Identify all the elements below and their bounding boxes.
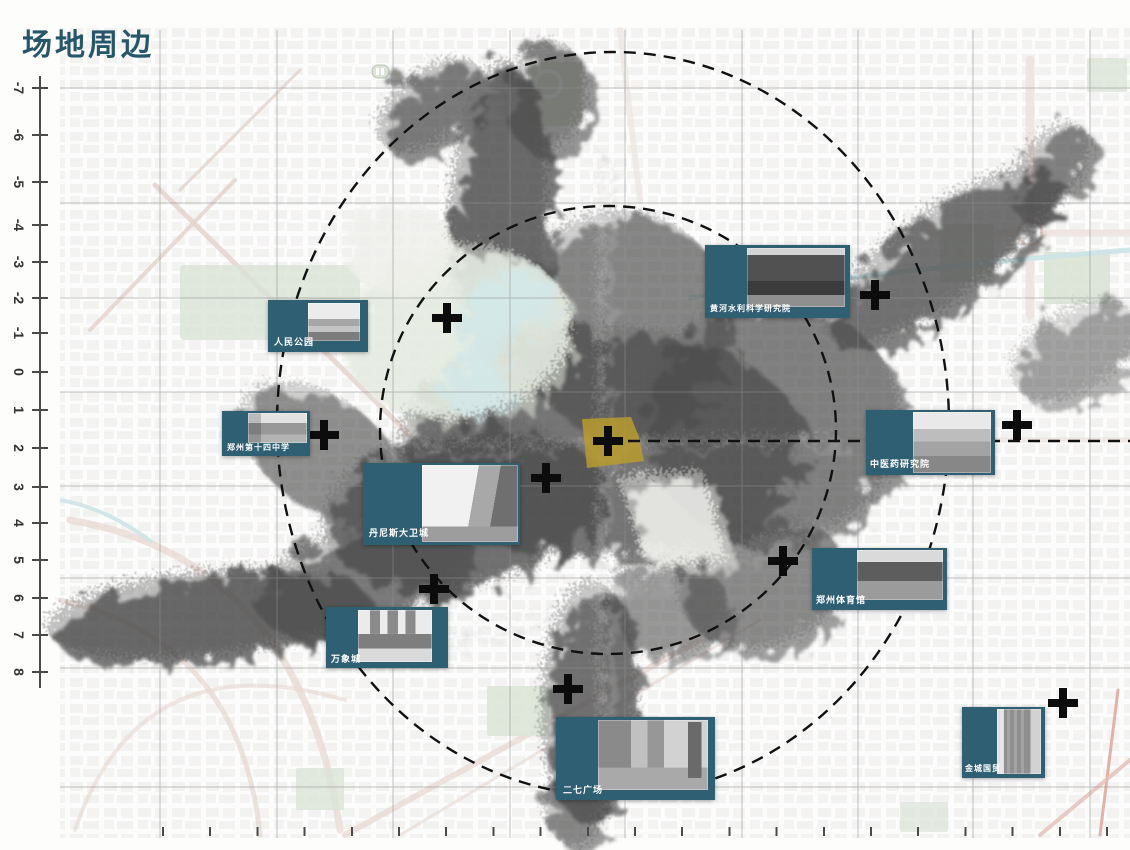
card-tcm-institute: 中医药研究院 [866,410,995,475]
landmark-label: 郑州第十四中学 [227,442,290,453]
y-axis-label: 4 [8,512,30,534]
card-dennis-david-city: 丹尼斯大卫城 [363,463,520,545]
y-axis-tick [32,134,48,136]
landmark-photo [248,413,307,443]
y-axis-tick [32,371,48,373]
landmark-photo [598,720,708,790]
y-axis-label: -5 [8,171,30,193]
landmark-label: 中医药研究院 [870,457,930,470]
card-no14-middle-school: 郑州第十四中学 [222,411,310,456]
plus-marker [1002,410,1032,440]
y-axis-tick [32,486,48,488]
landmark-photo [997,709,1041,774]
y-axis-tick [32,297,48,299]
card-yellow-river-institute: 黄河水利科学研究院 [705,245,850,318]
y-axis-label: 7 [8,624,30,646]
landmark-label: 万象城 [331,652,361,665]
y-axis-tick [32,597,48,599]
y-axis-label: -4 [8,214,30,236]
plus-marker [432,303,462,333]
y-axis-tick [32,522,48,524]
y-axis-label: -1 [8,322,30,344]
y-axis-label: 2 [8,437,30,459]
y-axis-tick [32,559,48,561]
y-axis-tick [32,87,48,89]
y-axis-label: 6 [8,587,30,609]
landmark-label: 金城国贸 [965,763,1001,774]
landmark-photo [358,610,432,662]
y-axis-label: 8 [8,661,30,683]
y-axis-label: 0 [8,361,30,383]
x-axis-ticks [162,827,1110,836]
plus-marker [531,463,561,493]
plus-marker [419,574,449,604]
card-jincheng-guomao: 金城国贸 [962,707,1045,778]
landmark-label: 郑州体育馆 [816,593,866,606]
plus-marker [1048,688,1078,718]
y-axis-tick [32,671,48,673]
plus-marker [768,546,798,576]
y-axis-tick [32,447,48,449]
landmark-photo [308,303,360,341]
page-title: 场地周边 [22,20,154,64]
y-axis-label: 1 [8,399,30,421]
plus-marker [860,280,890,310]
y-axis-tick [32,409,48,411]
y-axis-tick [32,634,48,636]
card-erqi-square: 二七广场 [556,717,715,800]
card-mixc: 万象城 [326,607,448,668]
landmark-label: 二七广场 [563,783,603,796]
landmark-label: 丹尼斯大卫城 [369,526,429,539]
site-plus-marker [593,426,623,456]
y-axis-label: 3 [8,476,30,498]
landmark-photo [747,248,845,307]
y-axis-tick [32,332,48,334]
card-people-park: 人民公园 [268,300,368,352]
y-axis-tick [32,181,48,183]
y-axis-label: -3 [8,251,30,273]
y-axis-tick [32,224,48,226]
card-zhengzhou-gymnasium: 郑州体育馆 [812,548,947,610]
landmark-photo [857,550,943,600]
y-axis-label: 5 [8,549,30,571]
y-axis-tick [32,261,48,263]
site-context-map: 场地周边 -7 -6 -5 -4 -3 -2 -1 0 1 2 3 4 5 6 … [0,0,1130,850]
landmark-label: 黄河水利科学研究院 [710,303,791,314]
landmark-label: 人民公园 [274,335,314,348]
y-axis-label: -2 [8,287,30,309]
plus-marker [553,674,583,704]
plus-marker [309,420,339,450]
y-axis-label: -7 [8,77,30,99]
y-axis-label: -6 [8,124,30,146]
landmark-photo [422,465,518,542]
